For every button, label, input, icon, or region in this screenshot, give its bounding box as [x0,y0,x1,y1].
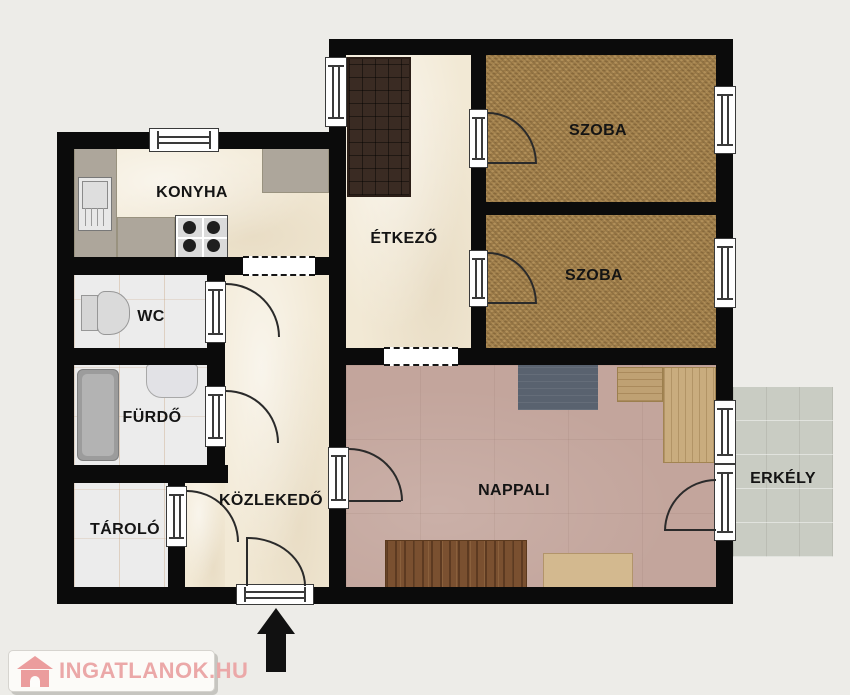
door-frame-szoba1 [469,109,488,168]
house-icon [17,656,53,687]
window [714,400,736,464]
kitchen-cabinet [262,148,329,193]
stove-burner [183,239,196,252]
kitchen-sink [78,177,112,231]
door-frame-wc [205,281,226,343]
stove-burner [207,221,220,234]
bathtub-inner [82,374,114,456]
entrance-arrow-stem [266,633,286,672]
sink-drainer [85,208,105,226]
house-door-icon [30,676,40,687]
dining-wardrobe [347,57,411,197]
living-wardrobe [663,367,716,463]
kitchen-stove [175,215,228,258]
room-label-nappali: NAPPALI [478,482,550,500]
room-label-konyha: KONYHA [156,184,228,202]
room-label-furdo: FÜRDŐ [123,409,182,427]
entrance-arrow-icon [257,608,295,634]
stove-burner [207,239,220,252]
door-frame-tarolo [166,486,187,547]
door-frame-nappali [328,447,349,509]
watermark: INGATLANOK.HU [8,650,215,692]
floor-plan: KONYHA WC FÜRDŐ TÁROLÓ KÖZLEKEDŐ ÉTKEZŐ … [0,0,850,695]
room-label-szoba1: SZOBA [569,122,627,140]
watermark-text: INGATLANOK.HU [59,658,248,684]
door-leaf-entrance [246,537,248,586]
wall [57,348,225,365]
window [714,86,736,154]
room-label-kozlekedo: KÖZLEKEDŐ [219,492,323,510]
sink-basin [82,181,108,209]
living-sideboard [385,540,527,588]
living-rug [518,365,598,410]
living-table [543,553,633,588]
toilet-tank [81,295,98,331]
window [325,57,347,127]
wall [330,39,733,55]
wall [57,465,228,483]
kitchen-counter [117,217,175,258]
stove-burner [183,221,196,234]
room-label-etkezo: ÉTKEZŐ [370,230,437,248]
opening-etkezo-nappali [384,347,458,366]
door-frame-szoba2 [469,250,488,307]
room-label-erkely: ERKÉLY [750,470,816,488]
door-frame-entrance [236,584,314,605]
wall [57,132,74,603]
door-frame-balcony [714,464,736,541]
bathtub [77,369,119,461]
room-label-wc: WC [137,308,164,326]
room-label-szoba2: SZOBA [565,267,623,285]
window [714,238,736,308]
living-wardrobe [617,367,663,402]
opening-konyha-kozlekedo [243,256,315,276]
wall [471,202,733,215]
door-frame-furdo [205,386,226,447]
bathroom-sink [146,364,198,398]
door-leaf-szoba2 [488,302,536,304]
window [149,128,219,152]
door-leaf-szoba1 [488,162,536,164]
door-leaf-nappali [349,500,401,502]
room-label-tarolo: TÁROLÓ [90,521,160,539]
door-leaf-balcony [664,529,716,531]
wall [57,587,733,604]
